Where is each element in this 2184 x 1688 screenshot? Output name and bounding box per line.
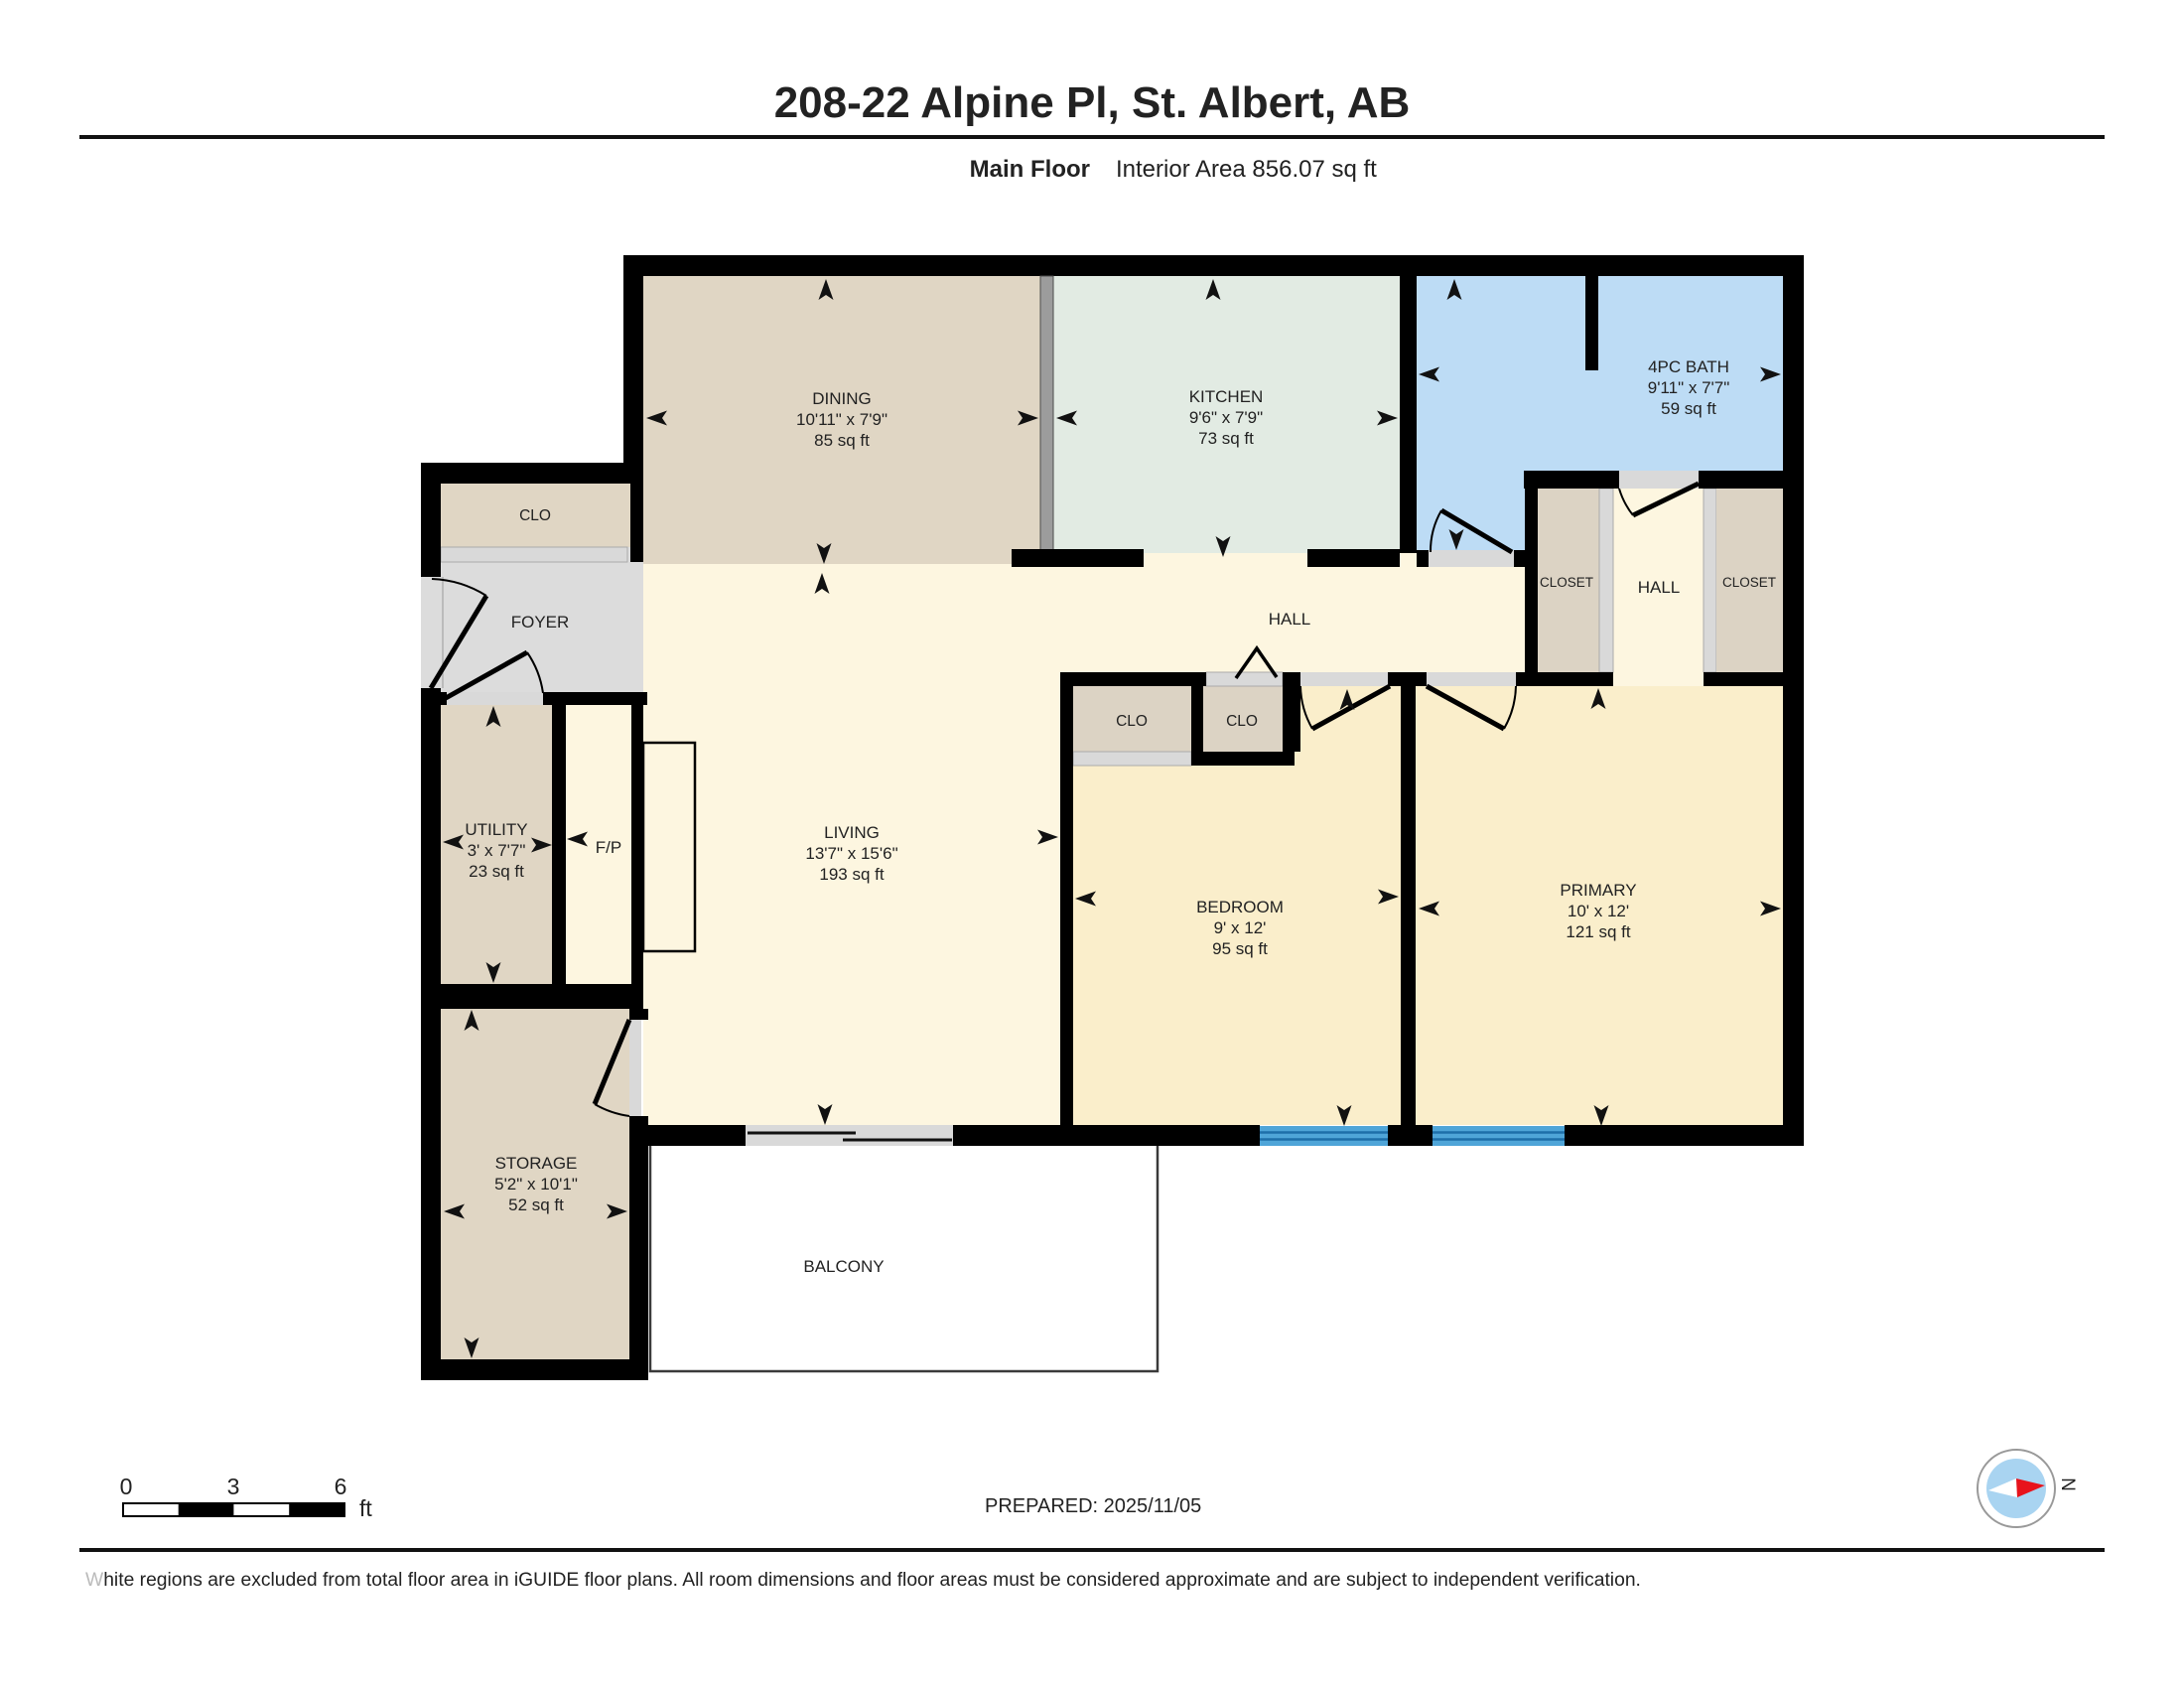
svg-text:White regions are excluded fro: White regions are excluded from total fl…	[85, 1570, 1641, 1591]
svg-text:N: N	[2057, 1477, 2078, 1491]
svg-text:121 sq ft: 121 sq ft	[1566, 922, 1630, 941]
svg-text:BALCONY: BALCONY	[803, 1257, 884, 1276]
svg-text:Interior Area 856.07 sq ft: Interior Area 856.07 sq ft	[1116, 156, 1377, 183]
svg-text:CLO: CLO	[519, 507, 551, 524]
svg-text:DINING: DINING	[812, 389, 872, 408]
svg-text:CLOSET: CLOSET	[1722, 575, 1776, 590]
svg-text:3: 3	[227, 1474, 240, 1499]
svg-text:0: 0	[120, 1474, 133, 1499]
svg-text:95 sq ft: 95 sq ft	[1212, 939, 1268, 958]
svg-text:PRIMARY: PRIMARY	[1560, 881, 1636, 900]
svg-text:73 sq ft: 73 sq ft	[1198, 429, 1254, 448]
svg-text:STORAGE: STORAGE	[495, 1154, 578, 1173]
svg-text:F/P: F/P	[596, 838, 621, 857]
svg-text:HALL: HALL	[1269, 610, 1311, 629]
svg-text:208-22 Alpine Pl, St. Albert,: 208-22 Alpine Pl, St. Albert, AB	[774, 78, 1411, 127]
svg-text:UTILITY: UTILITY	[465, 820, 527, 839]
svg-text:6: 6	[335, 1474, 347, 1499]
svg-text:85 sq ft: 85 sq ft	[814, 431, 870, 450]
svg-text:BEDROOM: BEDROOM	[1196, 898, 1284, 916]
svg-text:ft: ft	[359, 1495, 372, 1521]
svg-text:CLO: CLO	[1116, 713, 1148, 730]
svg-text:PREPARED: 2025/11/05: PREPARED: 2025/11/05	[985, 1495, 1201, 1517]
svg-text:CLOSET: CLOSET	[1540, 575, 1593, 590]
svg-text:Main Floor: Main Floor	[970, 156, 1090, 183]
svg-text:4PC BATH: 4PC BATH	[1648, 357, 1729, 376]
svg-text:3' x 7'7": 3' x 7'7"	[468, 841, 526, 860]
svg-text:10' x 12': 10' x 12'	[1568, 902, 1629, 920]
svg-text:5'2" x 10'1": 5'2" x 10'1"	[494, 1175, 578, 1194]
svg-text:13'7" x 15'6": 13'7" x 15'6"	[805, 844, 897, 863]
svg-text:193 sq ft: 193 sq ft	[819, 865, 884, 884]
svg-text:HALL: HALL	[1638, 578, 1681, 597]
svg-text:9'11" x 7'7": 9'11" x 7'7"	[1648, 378, 1730, 397]
svg-text:10'11" x 7'9": 10'11" x 7'9"	[796, 410, 887, 429]
svg-text:23 sq ft: 23 sq ft	[469, 862, 524, 881]
svg-text:FOYER: FOYER	[511, 613, 570, 632]
svg-text:52 sq ft: 52 sq ft	[508, 1196, 564, 1214]
svg-text:9' x 12': 9' x 12'	[1214, 918, 1267, 937]
svg-text:CLO: CLO	[1226, 713, 1258, 730]
svg-text:9'6" x 7'9": 9'6" x 7'9"	[1189, 408, 1263, 427]
svg-text:59 sq ft: 59 sq ft	[1661, 399, 1716, 418]
svg-text:KITCHEN: KITCHEN	[1189, 387, 1264, 406]
svg-text:LIVING: LIVING	[824, 823, 880, 842]
